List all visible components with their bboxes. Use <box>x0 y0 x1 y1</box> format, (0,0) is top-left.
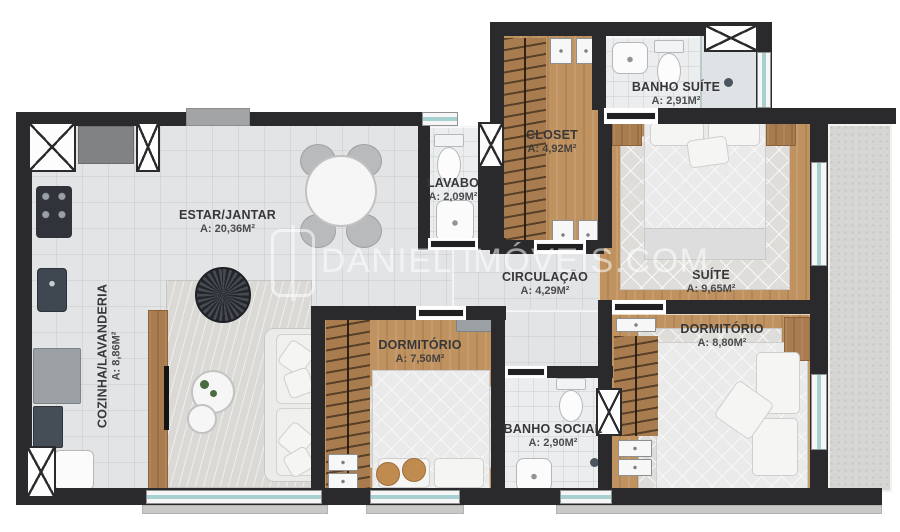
label-lavabo: LAVABO A: 2,09M² <box>410 176 496 205</box>
room-area: A: 2,09M² <box>410 191 496 204</box>
shaft-x-icon <box>478 122 504 168</box>
cooktop-icon <box>36 186 72 238</box>
label-dormitorio-2: DORMITÓRIO A: 8,80M² <box>650 322 794 351</box>
shaft-x-icon <box>26 446 56 498</box>
toilet-icon <box>556 378 586 390</box>
tv-icon <box>164 366 169 430</box>
room-area: A: 2,91M² <box>606 95 746 108</box>
floor-circulacao-lower <box>502 310 602 374</box>
shaft-x-icon <box>136 122 160 172</box>
fridge-icon <box>33 348 81 404</box>
shaft-x-icon <box>704 24 758 52</box>
room-name: CLOSET <box>504 128 600 143</box>
exterior-terrace-area <box>828 124 892 492</box>
room-area: A: 8,80M² <box>650 337 794 350</box>
window-sill <box>366 505 464 514</box>
wood-pouf <box>402 458 426 482</box>
wall-dorm1-left <box>311 306 325 494</box>
window-banho-social <box>560 490 612 504</box>
toilet-icon <box>434 134 464 147</box>
washbasin-icon <box>436 200 474 242</box>
kitchen-sink-icon <box>37 268 67 312</box>
toilet-icon <box>654 40 684 53</box>
wall-closet-banho <box>592 36 606 110</box>
door-banho-suite <box>606 112 656 120</box>
wall-niche <box>78 126 134 164</box>
label-dormitorio-1: DORMITÓRIO A: 7,50M² <box>348 338 492 367</box>
room-area: A: 9,65M² <box>648 283 774 296</box>
watermark-logo-icon <box>271 229 315 297</box>
watermark-logo-line <box>292 225 295 301</box>
label-banho-social: BANHO SOCIAL A: 2,90M² <box>484 422 622 451</box>
door-dormitorio-2 <box>614 303 664 311</box>
room-name: COZINHA/LAVANDERIA <box>96 251 111 461</box>
window-dormitorio-2 <box>811 374 827 450</box>
door-banho-social <box>507 368 545 376</box>
wardrobe-drawer <box>618 459 652 476</box>
window-sill <box>142 505 328 514</box>
wood-pouf <box>376 462 400 486</box>
window-suite <box>811 162 827 266</box>
pouf-armchair <box>195 267 251 323</box>
shaft-x-icon <box>28 122 76 172</box>
dining-table <box>305 155 377 227</box>
laundry-tub-icon <box>54 450 94 490</box>
window-dormitorio-1 <box>370 490 460 504</box>
door-dormitorio-1 <box>418 309 464 317</box>
washbasin-icon <box>516 458 552 492</box>
room-name: DORMITÓRIO <box>348 338 492 353</box>
wall-dorm1-banho <box>491 314 505 494</box>
room-name: ESTAR/JANTAR <box>145 208 310 223</box>
wardrobe-drawer <box>618 440 652 457</box>
room-name: BANHO SOCIAL <box>484 422 622 437</box>
room-area: A: 8,86M² <box>111 251 124 461</box>
label-banho-suite: BANHO SUÍTE A: 2,91M² <box>606 80 746 109</box>
plant-icon <box>210 390 217 397</box>
room-area: A: 4,29M² <box>474 285 616 298</box>
wall-dorm1-top <box>311 306 506 320</box>
entry-door <box>186 108 250 126</box>
coffee-table-small <box>187 404 217 434</box>
wardrobe-drawer <box>328 454 358 471</box>
room-name: DORMITÓRIO <box>650 322 794 337</box>
window-lavabo <box>422 112 458 126</box>
toilet-bowl-icon <box>559 390 583 422</box>
watermark-text: DANIEL IMÓVEIS.COM <box>321 242 709 281</box>
label-closet: CLOSET A: 4,92M² <box>504 128 600 157</box>
room-name: LAVABO <box>410 176 496 191</box>
window-banho-suite <box>757 52 771 108</box>
closet-drawer <box>550 38 572 64</box>
room-area: A: 4,92M² <box>504 143 600 156</box>
window-sill <box>556 505 882 514</box>
room-name: BANHO SUÍTE <box>606 80 746 95</box>
washer-icon <box>33 406 63 448</box>
room-area: A: 7,50M² <box>348 353 492 366</box>
washbasin-icon <box>612 42 648 74</box>
window-estar-balcony <box>146 490 322 504</box>
room-area: A: 2,90M² <box>484 437 622 450</box>
label-cozinha-lavanderia: COZINHA/LAVANDERIA A: 8,86M² <box>96 251 125 461</box>
bed-pillow <box>434 458 484 488</box>
bed-accent-pillow <box>686 135 730 168</box>
wall-circ-suite <box>598 124 612 248</box>
plant-icon <box>200 380 209 389</box>
floor-plan: ESTAR/JANTAR A: 20,36M² COZINHA/LAVANDER… <box>0 0 900 532</box>
